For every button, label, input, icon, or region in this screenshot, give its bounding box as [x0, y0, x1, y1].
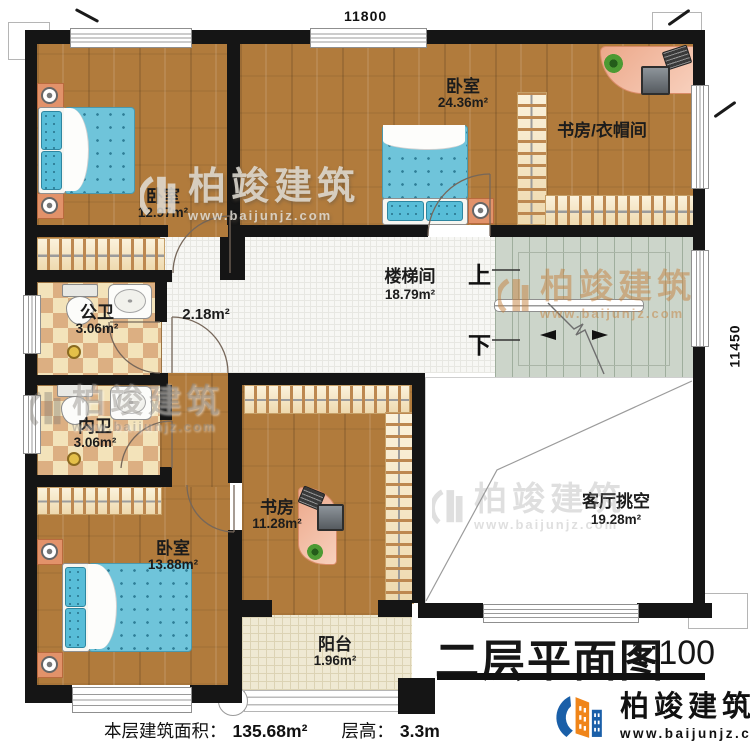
- floor-plan-canvas: 11800 11450 卧室 12.97m² 卧室 24.36m² 书房/衣帽间…: [0, 0, 750, 754]
- wall: [25, 352, 37, 395]
- balcony-railing: [244, 690, 402, 712]
- footer-height-value: 3.3m: [400, 721, 440, 742]
- stair-down-label: 下: [468, 326, 491, 360]
- wall: [693, 30, 705, 85]
- window: [23, 395, 41, 454]
- dimension-top: 11800: [344, 8, 387, 24]
- bed-pillow: [426, 201, 463, 221]
- room-label-bedroom-bl: 卧室: [156, 540, 190, 558]
- wall: [228, 225, 428, 237]
- footer-area-value: 135.68m²: [233, 721, 308, 742]
- wall: [378, 600, 412, 617]
- wall: [37, 375, 160, 385]
- room-label-living-void: 客厅挑空: [582, 493, 650, 511]
- window: [72, 687, 192, 713]
- window: [23, 295, 41, 354]
- wall: [228, 373, 242, 483]
- room-area-study-bottom: 11.28m²: [252, 517, 302, 531]
- room-label-bedroom-tl: 卧室: [146, 188, 180, 206]
- floor-stair-hall: [160, 237, 495, 373]
- lamp-icon: [472, 202, 489, 219]
- wall: [637, 603, 712, 618]
- wall: [190, 30, 310, 44]
- wardrobe-study-right: [385, 412, 414, 604]
- wall: [155, 282, 167, 322]
- window: [691, 85, 709, 189]
- wall: [25, 452, 37, 703]
- wall: [220, 237, 245, 280]
- wall: [418, 603, 483, 618]
- bed-pillow: [65, 567, 86, 607]
- wall: [160, 467, 172, 487]
- axis-tick-icon: [75, 8, 99, 23]
- sink-basin: [116, 391, 146, 414]
- dimension-right: 11450: [727, 324, 743, 367]
- room-label-study-cloakroom: 书房/衣帽间: [557, 122, 647, 140]
- bed-sheet-fold: [383, 125, 465, 150]
- wall: [412, 385, 425, 603]
- bed-pillow: [387, 201, 424, 221]
- lamp-icon: [41, 656, 58, 673]
- room-area-living-void: 19.28m²: [591, 513, 641, 527]
- footer-area-label: 本层建筑面积：: [104, 718, 227, 743]
- wardrobe-cloakroom-horizontal: [545, 195, 695, 227]
- wardrobe-cloakroom-vertical: [517, 92, 547, 225]
- living-room-void: [425, 377, 695, 605]
- wall: [227, 44, 240, 225]
- room-label-stairwell: 楼梯间: [385, 268, 436, 286]
- wall: [425, 30, 705, 44]
- brand-logo: 柏竣建筑 www.baijunjz.com: [552, 688, 750, 746]
- room-area-bedroom-bl: 13.88m²: [148, 558, 198, 572]
- wardrobe-bedroom-bottom-left: [37, 487, 162, 515]
- wall: [242, 373, 425, 385]
- wall: [25, 30, 37, 295]
- stair-up-label: 上: [468, 256, 491, 290]
- bed-pillow: [41, 111, 62, 150]
- plan-scale: 1:100: [630, 634, 715, 673]
- room-area-stairwell: 18.79m²: [385, 288, 435, 302]
- bed-pillow: [41, 151, 62, 190]
- wardrobe-bedroom-top-left: [37, 238, 165, 272]
- footer-height-label: 层高：: [341, 718, 394, 743]
- wall: [25, 685, 72, 703]
- room-area-bedroom-tl: 12.97m²: [138, 206, 188, 220]
- pillar: [398, 678, 435, 714]
- wall: [490, 225, 693, 237]
- wall: [160, 385, 172, 420]
- brand-logo-url: www.baijunjz.com: [620, 726, 750, 741]
- title-underline: [437, 673, 705, 680]
- room-label-bath-private: 内卫: [78, 418, 112, 436]
- lamp-icon: [41, 543, 58, 560]
- brand-logo-name: 柏竣建筑: [620, 693, 750, 722]
- wall: [150, 373, 168, 385]
- computer-monitor-icon: [641, 66, 670, 95]
- wall: [37, 270, 172, 282]
- room-area-bath-public: 3.06m²: [76, 322, 119, 336]
- room-area-balcony: 1.96m²: [314, 654, 357, 668]
- room-area-hallway: 2.18m²: [182, 307, 230, 323]
- sink-basin: [114, 289, 146, 313]
- wall: [693, 187, 705, 250]
- computer-monitor-icon: [317, 504, 344, 531]
- wall: [190, 685, 242, 703]
- room-label-balcony: 阳台: [318, 636, 352, 654]
- wall: [37, 475, 160, 487]
- lamp-icon: [41, 197, 58, 214]
- wall: [693, 345, 705, 603]
- bed-pillow: [65, 608, 86, 648]
- window: [310, 28, 427, 48]
- wardrobe-study-top: [244, 385, 410, 414]
- window: [691, 250, 709, 347]
- floor-drain-icon: [67, 452, 81, 466]
- footer-info: 本层建筑面积：135.68m² 层高：3.3m: [104, 718, 440, 743]
- wall: [240, 600, 272, 617]
- plant-icon: [307, 544, 323, 560]
- room-label-study-bottom: 书房: [260, 499, 294, 517]
- wall: [37, 225, 168, 237]
- axis-tick-icon: [713, 101, 736, 118]
- room-label-bath-public: 公卫: [80, 304, 114, 322]
- room-area-bedroom-tm: 24.36m²: [438, 96, 488, 110]
- room-label-bedroom-tm: 卧室: [446, 78, 480, 96]
- plant-icon: [604, 54, 623, 73]
- lamp-icon: [41, 87, 58, 104]
- window: [483, 604, 639, 623]
- window: [70, 28, 192, 48]
- floor-drain-icon: [67, 345, 81, 359]
- brand-logo-icon: [552, 688, 610, 746]
- stair-handrail: [494, 299, 644, 312]
- room-area-bath-private: 3.06m²: [74, 436, 117, 450]
